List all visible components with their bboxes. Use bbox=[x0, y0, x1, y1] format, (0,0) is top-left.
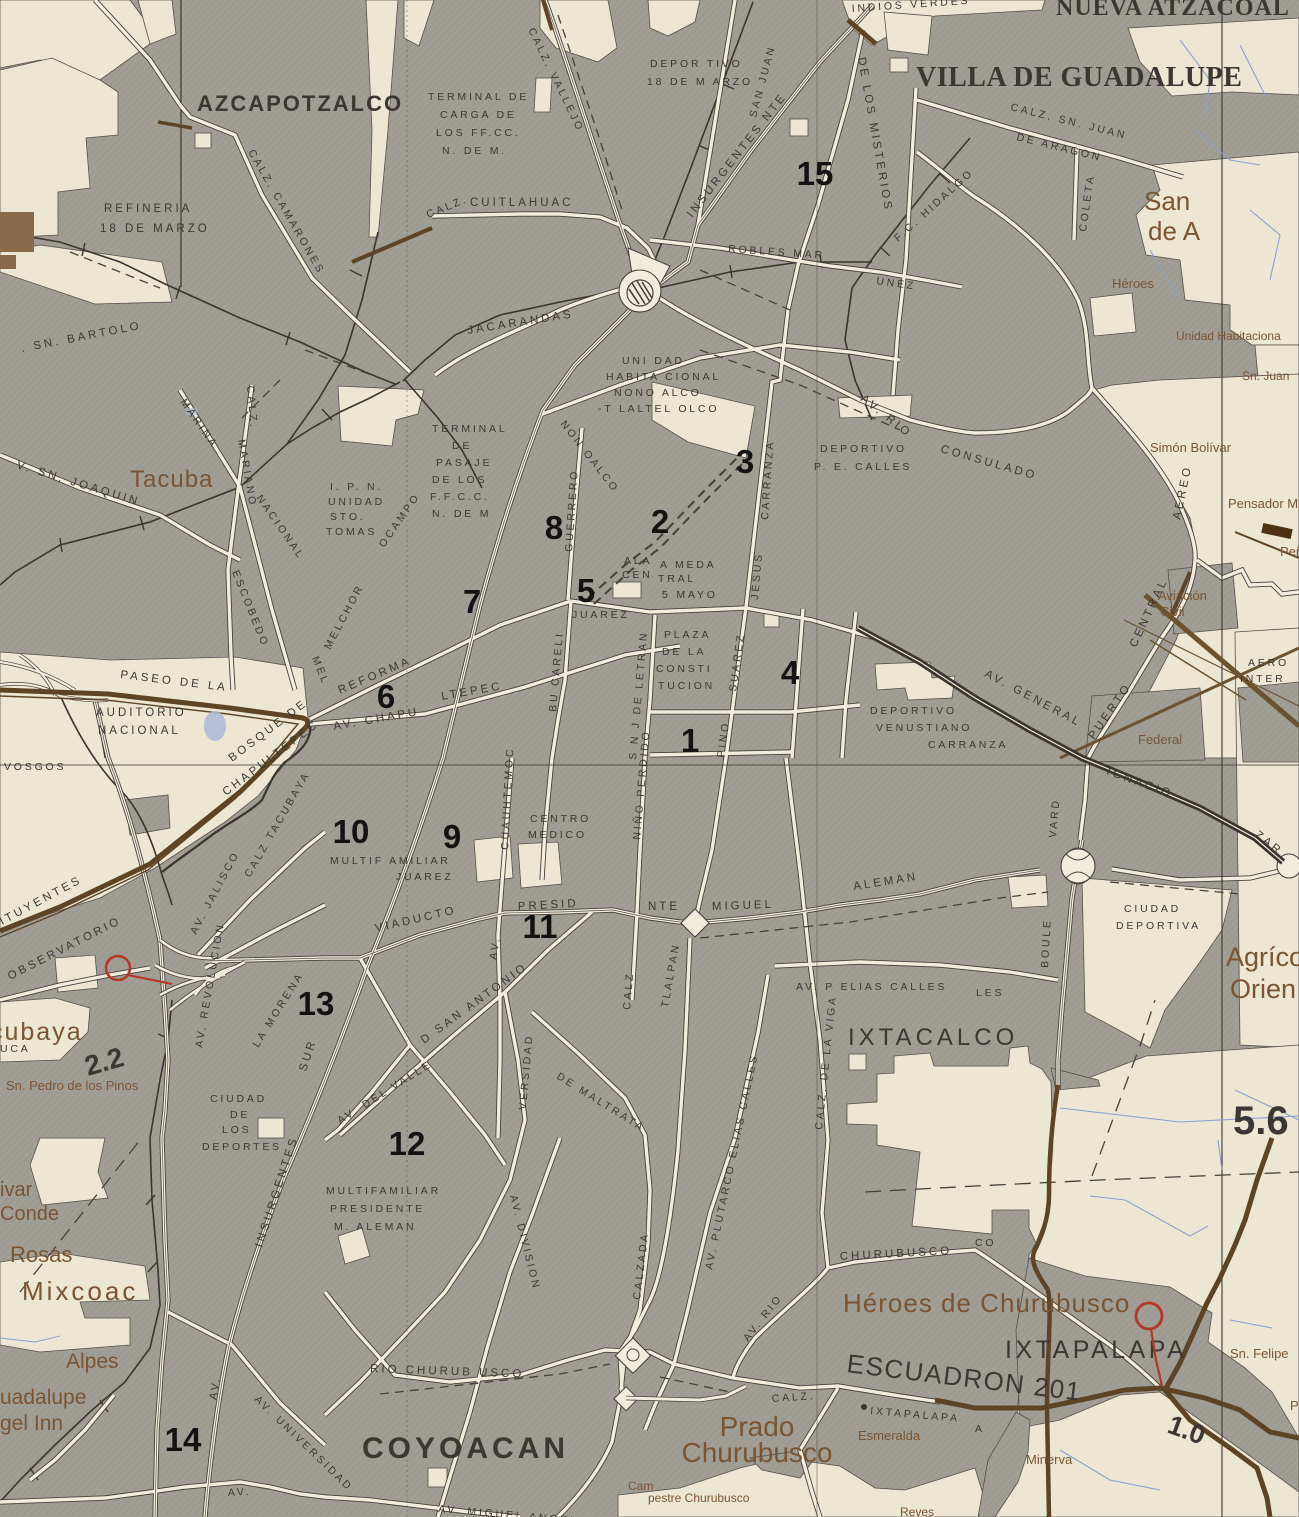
svg-text:3: 3 bbox=[736, 443, 754, 480]
svg-text:CO: CO bbox=[975, 1237, 996, 1249]
svg-text:VENUSTIANO: VENUSTIANO bbox=[876, 722, 972, 734]
svg-text:Alpes: Alpes bbox=[66, 1350, 119, 1373]
svg-text:MULTIFAMILIAR: MULTIFAMILIAR bbox=[326, 1185, 441, 1197]
svg-text:CARGA DE: CARGA DE bbox=[440, 109, 517, 121]
svg-text:Unidad Habitaciona: Unidad Habitaciona bbox=[1176, 329, 1281, 343]
svg-text:Sn. Juan: Sn. Juan bbox=[1242, 369, 1289, 383]
svg-text:I. P. N.: I. P. N. bbox=[330, 481, 383, 493]
svg-text:NONO ALCO: NONO ALCO bbox=[614, 387, 702, 399]
svg-text:IXTAPALAPA: IXTAPALAPA bbox=[1005, 1336, 1187, 1364]
svg-text:NTE: NTE bbox=[648, 901, 680, 913]
svg-text:Conde: Conde bbox=[0, 1203, 59, 1225]
svg-text:ivar: ivar bbox=[0, 1179, 33, 1201]
svg-text:13: 13 bbox=[298, 985, 335, 1022]
svg-text:AV. P ELIAS CALLES: AV. P ELIAS CALLES bbox=[796, 981, 947, 993]
svg-text:MULTIF AMILIAR: MULTIF AMILIAR bbox=[330, 855, 451, 867]
svg-text:Héroes de Churubusco: Héroes de Churubusco bbox=[843, 1288, 1130, 1318]
svg-text:DE: DE bbox=[452, 440, 472, 452]
svg-text:NACIONAL: NACIONAL bbox=[98, 725, 181, 737]
svg-text:CIUDAD: CIUDAD bbox=[210, 1093, 267, 1105]
svg-text:Peñ: Peñ bbox=[1280, 544, 1299, 559]
svg-text:A MEDA: A MEDA bbox=[660, 559, 716, 571]
svg-text:TOMAS: TOMAS bbox=[326, 526, 377, 538]
svg-text:DEPOR TIVO: DEPOR TIVO bbox=[650, 58, 743, 70]
svg-text:Sn. Pedro de los Pinos: Sn. Pedro de los Pinos bbox=[6, 1078, 139, 1093]
svg-text:CENTRO: CENTRO bbox=[530, 813, 591, 825]
svg-text:gel Inn: gel Inn bbox=[0, 1412, 63, 1435]
svg-text:12: 12 bbox=[389, 1125, 426, 1162]
svg-text:INTER: INTER bbox=[1240, 673, 1286, 685]
svg-text:DEPORTIVO: DEPORTIVO bbox=[820, 443, 907, 455]
svg-text:N. DE M: N. DE M bbox=[432, 508, 491, 520]
svg-text:San: San bbox=[1144, 186, 1190, 216]
svg-text:Agríco: Agríco bbox=[1226, 942, 1299, 972]
svg-text:18 DE MARZO: 18 DE MARZO bbox=[100, 223, 210, 235]
svg-text:Civil: Civil bbox=[1160, 604, 1185, 619]
svg-text:P: P bbox=[1290, 1398, 1299, 1413]
svg-text:15: 15 bbox=[797, 155, 834, 192]
svg-text:de A: de A bbox=[1148, 216, 1201, 246]
svg-text:DEPORTIVA: DEPORTIVA bbox=[1116, 920, 1201, 932]
svg-text:cubaya: cubaya bbox=[0, 1018, 83, 1046]
svg-text:TUCION: TUCION bbox=[658, 680, 715, 692]
svg-text:AV.: AV. bbox=[228, 1486, 252, 1499]
svg-text:Reyes: Reyes bbox=[900, 1505, 934, 1517]
svg-text:-T LALTEL OLCO: -T LALTEL OLCO bbox=[598, 403, 719, 415]
svg-text:CARRANZA: CARRANZA bbox=[928, 739, 1008, 751]
svg-text:AZCAPOTZALCO: AZCAPOTZALCO bbox=[197, 91, 403, 116]
svg-text:uadalupe: uadalupe bbox=[0, 1386, 86, 1409]
svg-text:6: 6 bbox=[377, 678, 395, 715]
svg-text:5 MAYO: 5 MAYO bbox=[662, 589, 718, 601]
svg-text:DE LOS: DE LOS bbox=[432, 474, 487, 486]
svg-text:HABITA CIONAL: HABITA CIONAL bbox=[606, 371, 721, 383]
svg-text:VILLA DE GUADALUPE: VILLA DE GUADALUPE bbox=[916, 62, 1242, 93]
svg-text:Orien: Orien bbox=[1230, 974, 1296, 1004]
svg-text:Simón Bolívar: Simón Bolívar bbox=[1150, 440, 1232, 455]
svg-text:P. E. CALLES: P. E. CALLES bbox=[814, 461, 912, 473]
svg-text:Tacuba: Tacuba bbox=[130, 466, 213, 493]
svg-text:JUAREZ: JUAREZ bbox=[572, 609, 630, 621]
svg-text:5.6: 5.6 bbox=[1233, 1099, 1289, 1143]
svg-text:A: A bbox=[975, 1423, 985, 1435]
svg-text:IXTACALCO: IXTACALCO bbox=[848, 1024, 1018, 1051]
svg-text:UNIDAD: UNIDAD bbox=[328, 496, 385, 508]
svg-text:10: 10 bbox=[333, 813, 370, 850]
svg-text:9: 9 bbox=[443, 818, 461, 855]
svg-text:2: 2 bbox=[651, 503, 669, 540]
svg-text:AERO: AERO bbox=[1248, 657, 1289, 669]
svg-text:ALA: ALA bbox=[624, 555, 652, 567]
svg-text:Rosas: Rosas bbox=[10, 1242, 72, 1267]
svg-text:Federal: Federal bbox=[1138, 732, 1182, 747]
svg-text:Pensador M: Pensador M bbox=[1228, 496, 1298, 511]
svg-text:CONSTI: CONSTI bbox=[656, 663, 712, 675]
svg-text:MEDICO: MEDICO bbox=[528, 829, 587, 841]
svg-text:1: 1 bbox=[681, 722, 699, 759]
svg-text:DEPORTIVO: DEPORTIVO bbox=[870, 705, 957, 717]
svg-text:Esmeralda: Esmeralda bbox=[858, 1428, 921, 1443]
svg-text:Minerva: Minerva bbox=[1026, 1452, 1073, 1467]
svg-text:STO.: STO. bbox=[330, 511, 366, 523]
svg-text:MIGUEL: MIGUEL bbox=[712, 899, 774, 913]
svg-text:11: 11 bbox=[523, 908, 558, 945]
svg-text:7: 7 bbox=[463, 583, 481, 620]
svg-text:Aviación: Aviación bbox=[1158, 588, 1207, 603]
svg-text:PLAZA: PLAZA bbox=[664, 629, 711, 641]
svg-text:PASAJE: PASAJE bbox=[436, 457, 492, 469]
svg-text:N. DE M.: N. DE M. bbox=[442, 145, 507, 157]
svg-text:8: 8 bbox=[545, 509, 563, 546]
svg-text:LOS FF.CC.: LOS FF.CC. bbox=[436, 127, 521, 139]
svg-text:CUITLAHUAC: CUITLAHUAC bbox=[470, 197, 573, 209]
svg-text:Héroes: Héroes bbox=[1112, 276, 1154, 291]
svg-text:TRAL: TRAL bbox=[658, 573, 696, 585]
svg-text:PRESIDENTE: PRESIDENTE bbox=[330, 1203, 425, 1215]
svg-text:M. ALEMAN: M. ALEMAN bbox=[334, 1221, 416, 1233]
svg-text:UNI DAD: UNI DAD bbox=[622, 355, 685, 367]
svg-text:NUEVA ATZACOAL: NUEVA ATZACOAL bbox=[1056, 0, 1290, 21]
svg-text:DEPORTES: DEPORTES bbox=[202, 1141, 282, 1153]
svg-text:DE: DE bbox=[230, 1109, 250, 1121]
svg-text:LOS: LOS bbox=[222, 1124, 251, 1136]
svg-text:14: 14 bbox=[165, 1421, 202, 1458]
svg-text:COYOACAN: COYOACAN bbox=[362, 1432, 569, 1465]
svg-text:Mixcoac: Mixcoac bbox=[22, 1276, 138, 1306]
svg-text:5: 5 bbox=[577, 572, 595, 609]
svg-text:CEN: CEN bbox=[622, 569, 653, 581]
svg-text:Sn. Felipe: Sn. Felipe bbox=[1230, 1346, 1289, 1361]
svg-text:18 DE M ARZO: 18 DE M ARZO bbox=[647, 76, 753, 88]
svg-text:JUAREZ: JUAREZ bbox=[396, 871, 454, 883]
svg-text:LES: LES bbox=[976, 987, 1004, 999]
svg-text:AUDITORIO: AUDITORIO bbox=[96, 707, 187, 719]
svg-text:TERMINAL DE: TERMINAL DE bbox=[428, 91, 529, 103]
svg-text:F.F.C.C.: F.F.C.C. bbox=[430, 491, 490, 503]
svg-text:4: 4 bbox=[781, 654, 800, 691]
svg-text:DE LA: DE LA bbox=[662, 646, 706, 658]
svg-text:REFINERIA: REFINERIA bbox=[104, 203, 192, 215]
svg-text:TERMINAL: TERMINAL bbox=[432, 423, 508, 435]
svg-text:UCA: UCA bbox=[0, 1043, 31, 1055]
svg-text:VOSGOS: VOSGOS bbox=[4, 761, 66, 773]
svg-text:CIUDAD: CIUDAD bbox=[1124, 903, 1181, 915]
svg-text:pestre Churubusco: pestre Churubusco bbox=[648, 1491, 750, 1505]
svg-text:Churubusco: Churubusco bbox=[682, 1437, 833, 1468]
